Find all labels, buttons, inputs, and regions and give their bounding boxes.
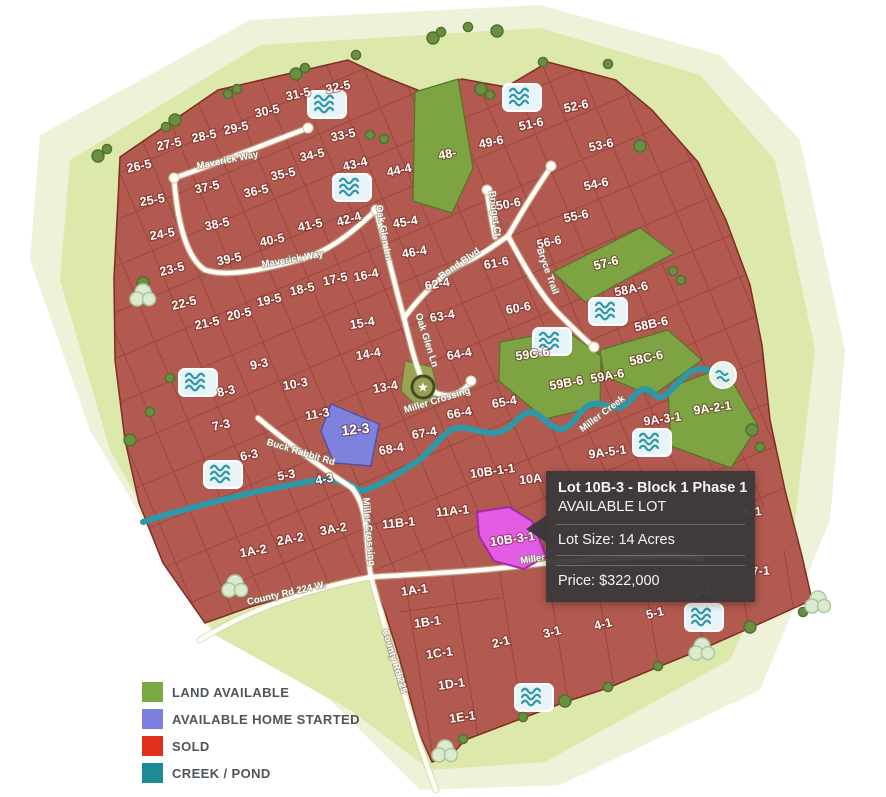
tree-icon: [458, 734, 467, 743]
tree-icon: [746, 424, 758, 436]
creek-pond-swatch: [142, 763, 163, 783]
tree-icon: [744, 621, 756, 633]
legend-label: AVAILABLE HOME STARTED: [172, 712, 360, 727]
pond-icon: [179, 369, 217, 396]
tree-icon: [463, 22, 472, 31]
tooltip-arrow: [526, 515, 547, 543]
round-pond: [710, 362, 736, 388]
svg-text:★: ★: [417, 380, 429, 395]
tree-icon: [559, 695, 571, 707]
legend-label: CREEK / POND: [172, 766, 271, 781]
pond-icon: [515, 684, 553, 711]
entrance-star-icon: ★: [412, 376, 434, 398]
tree-icon: [145, 407, 154, 416]
tree-icon: [300, 63, 309, 72]
tree-icon: [436, 27, 445, 36]
legend-item-land-available: LAND AVAILABLE: [142, 682, 360, 702]
sold-swatch: [142, 736, 163, 756]
land-available-swatch: [142, 682, 163, 702]
legend-item-creek-pond: CREEK / POND: [142, 763, 360, 783]
pond-icon: [503, 84, 541, 111]
tree-icon: [676, 275, 685, 284]
tree-icon: [92, 150, 104, 162]
tree-icon: [538, 57, 547, 66]
tree-icon: [491, 25, 503, 37]
tooltip-price: Price: $322,000: [558, 566, 743, 596]
tree-icon: [232, 84, 241, 93]
tree-icon: [365, 130, 374, 139]
legend-item-sold: SOLD: [142, 736, 360, 756]
pond-icon: [333, 174, 371, 201]
lot-label-10a[interactable]: 10A: [518, 471, 542, 487]
lot-label-12-3[interactable]: 12-3: [341, 420, 371, 439]
tree-icon: [165, 373, 174, 382]
tree-icon: [653, 661, 662, 670]
tree-icon: [102, 144, 111, 153]
pond-icon: [633, 429, 671, 456]
tree-icon: [161, 122, 170, 131]
tooltip-title: Lot 10B-3 - Block 1 Phase 1: [558, 479, 743, 498]
tree-icon: [351, 50, 360, 59]
tree-icon: [668, 266, 677, 275]
pond-icon: [204, 461, 242, 488]
pond-icon: [685, 604, 723, 631]
legend-item-home-started: AVAILABLE HOME STARTED: [142, 709, 360, 729]
lot-tooltip: Lot 10B-3 - Block 1 Phase 1 AVAILABLE LO…: [546, 471, 755, 602]
plat-map-page: ★Maverick WayMaverick WayOak Glen LnOak …: [0, 0, 886, 797]
tree-icon: [169, 114, 181, 126]
tree-icon: [124, 434, 136, 446]
tree-icon: [603, 682, 612, 691]
tree-icon: [518, 712, 527, 721]
tree-icon: [755, 442, 764, 451]
tree-icon: [223, 89, 232, 98]
tree-icon: [379, 134, 388, 143]
tree-icon: [603, 59, 612, 68]
pond-icon: [589, 298, 627, 325]
home-started-swatch: [142, 709, 163, 729]
legend-label: LAND AVAILABLE: [172, 685, 289, 700]
legend-label: SOLD: [172, 739, 210, 754]
tree-icon: [485, 90, 494, 99]
tree-icon: [634, 140, 646, 152]
map-legend: LAND AVAILABLE AVAILABLE HOME STARTED SO…: [142, 682, 360, 783]
plat-map[interactable]: ★Maverick WayMaverick WayOak Glen LnOak …: [0, 0, 886, 797]
tooltip-lot-size: Lot Size: 14 Acres: [558, 525, 743, 555]
tooltip-status: AVAILABLE LOT: [558, 498, 743, 517]
